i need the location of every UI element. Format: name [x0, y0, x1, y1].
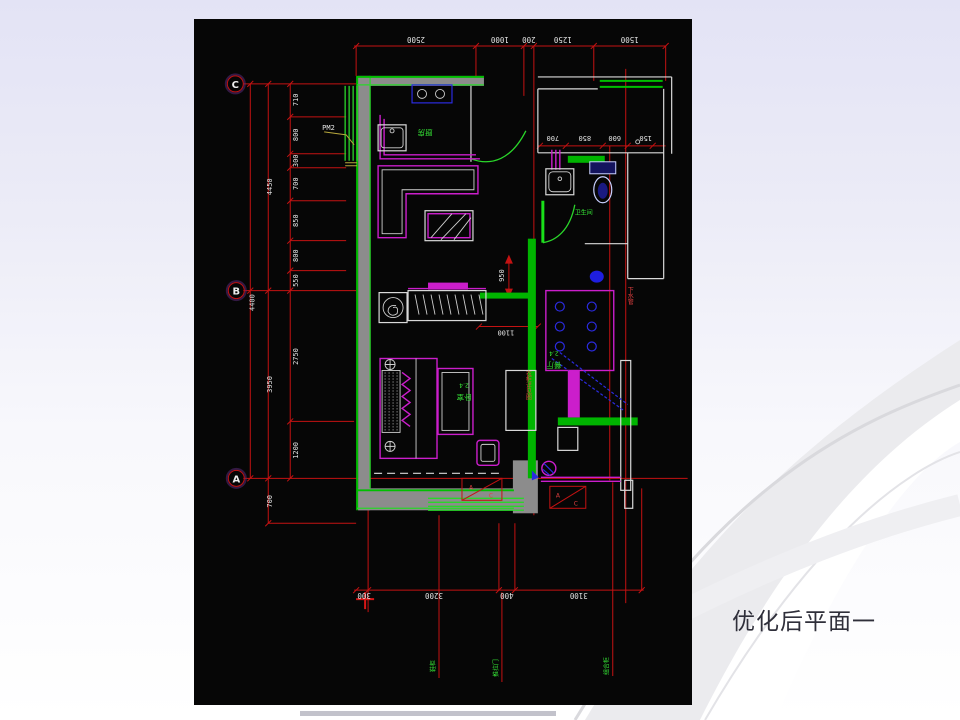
dim-left-outer: 4400: [248, 294, 256, 311]
dim-top-2: 1000: [490, 35, 508, 44]
dim-bath: 850: [578, 134, 591, 142]
grid-bubble-c: C: [232, 80, 239, 91]
room-area-dining: 2.4: [549, 350, 559, 357]
grid-bubbles: C B A: [226, 74, 246, 487]
svg-text:C: C: [574, 500, 578, 507]
dim-bottom: 400: [500, 591, 514, 600]
grid-bubble-a: A: [232, 474, 240, 485]
bottom-edge-sliver: [300, 711, 556, 716]
dim-left: 300: [292, 154, 300, 167]
window-tag: PM2: [322, 124, 335, 132]
dim-bath: 700: [547, 134, 560, 142]
dim-top-1: 2500: [407, 35, 425, 44]
dim-bottom: 3200: [425, 591, 443, 600]
floorplan-svg: A C A C C B A 2500 1000: [194, 19, 692, 705]
dim-top-5: 1500: [620, 35, 638, 44]
dim-top-3: 200: [522, 35, 536, 44]
room-label-bathroom: 卫生间: [575, 209, 593, 217]
dim-bath: 600: [608, 134, 621, 142]
dim-left: 550: [292, 274, 300, 287]
ac-letter-c: C: [489, 492, 493, 499]
dim-left: 1200: [292, 442, 300, 459]
dim-below-a: 700: [266, 495, 274, 508]
dim-left: 2750: [292, 348, 300, 365]
dim-left-overall-cb: 4450: [266, 178, 274, 195]
mid-green-wall: [528, 239, 536, 479]
svg-text:A: A: [556, 492, 561, 499]
walls: [345, 76, 672, 513]
cad-floorplan-image: A C A C C B A 2500 1000: [194, 19, 692, 705]
dim-950: 950: [498, 269, 506, 282]
floor-drain: [590, 271, 604, 283]
dim-left: 800: [292, 129, 300, 142]
leader-label-combo-cabinet: 组合柜: [603, 657, 611, 675]
dim-left: 700: [292, 177, 300, 190]
dimension-text: 2500 1000 200 1250 1500 710 800 300 700 …: [248, 35, 652, 600]
dim-top-4: 1250: [553, 35, 571, 44]
stove: [412, 85, 452, 103]
presentation-slide: A C A C C B A 2500 1000: [0, 0, 960, 720]
room-label-bedroom: 卧室: [456, 392, 471, 402]
entry-door-arc: [471, 131, 526, 162]
dim-left: 850: [292, 214, 300, 227]
top-right-window: [600, 81, 663, 87]
dim-left: 800: [292, 249, 300, 262]
appliance-cabinet: [546, 291, 614, 371]
room-label-kitchen: 厨房: [418, 128, 433, 138]
grid-bubble-b: B: [232, 287, 240, 298]
note-pipe: 下水管: [626, 287, 633, 306]
dim-left-overall-ba: 3950: [266, 376, 274, 393]
dim-bottom: 300: [357, 591, 371, 600]
note-wardrobe: 衣柜详见图: [524, 370, 531, 402]
slide-title: 优化后平面一: [732, 602, 952, 636]
leader-label-shoe-cabinet: 鞋柜: [429, 660, 437, 672]
room-label-dining: 餐厅: [546, 360, 561, 369]
ac-unit-box: A C: [550, 486, 586, 508]
room-area-bedroom: 2.4: [459, 381, 469, 388]
leader-label-sliding-door: 推拉门: [492, 659, 500, 677]
dim-bottom: 3100: [569, 591, 587, 600]
dim-bath: 150: [639, 134, 652, 142]
window-hatch: [345, 86, 357, 161]
dim-left: 710: [292, 94, 300, 107]
bath-door-arc: [543, 205, 575, 243]
toilet-tank: [590, 162, 616, 174]
dim-1100: 1100: [498, 329, 515, 337]
